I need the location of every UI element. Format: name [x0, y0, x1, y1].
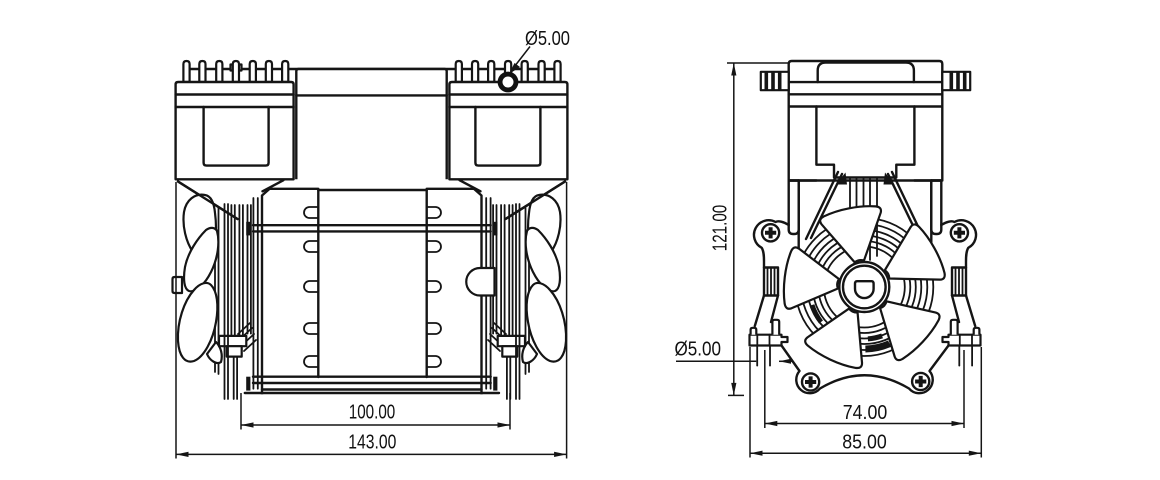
svg-text:100.00: 100.00	[349, 401, 396, 424]
svg-text:Ø5.00: Ø5.00	[525, 27, 570, 50]
svg-text:143.00: 143.00	[348, 431, 396, 454]
svg-text:85.00: 85.00	[842, 431, 887, 454]
svg-text:Ø5.00: Ø5.00	[675, 338, 722, 361]
svg-text:74.00: 74.00	[843, 401, 888, 424]
svg-text:121.00: 121.00	[709, 205, 732, 252]
